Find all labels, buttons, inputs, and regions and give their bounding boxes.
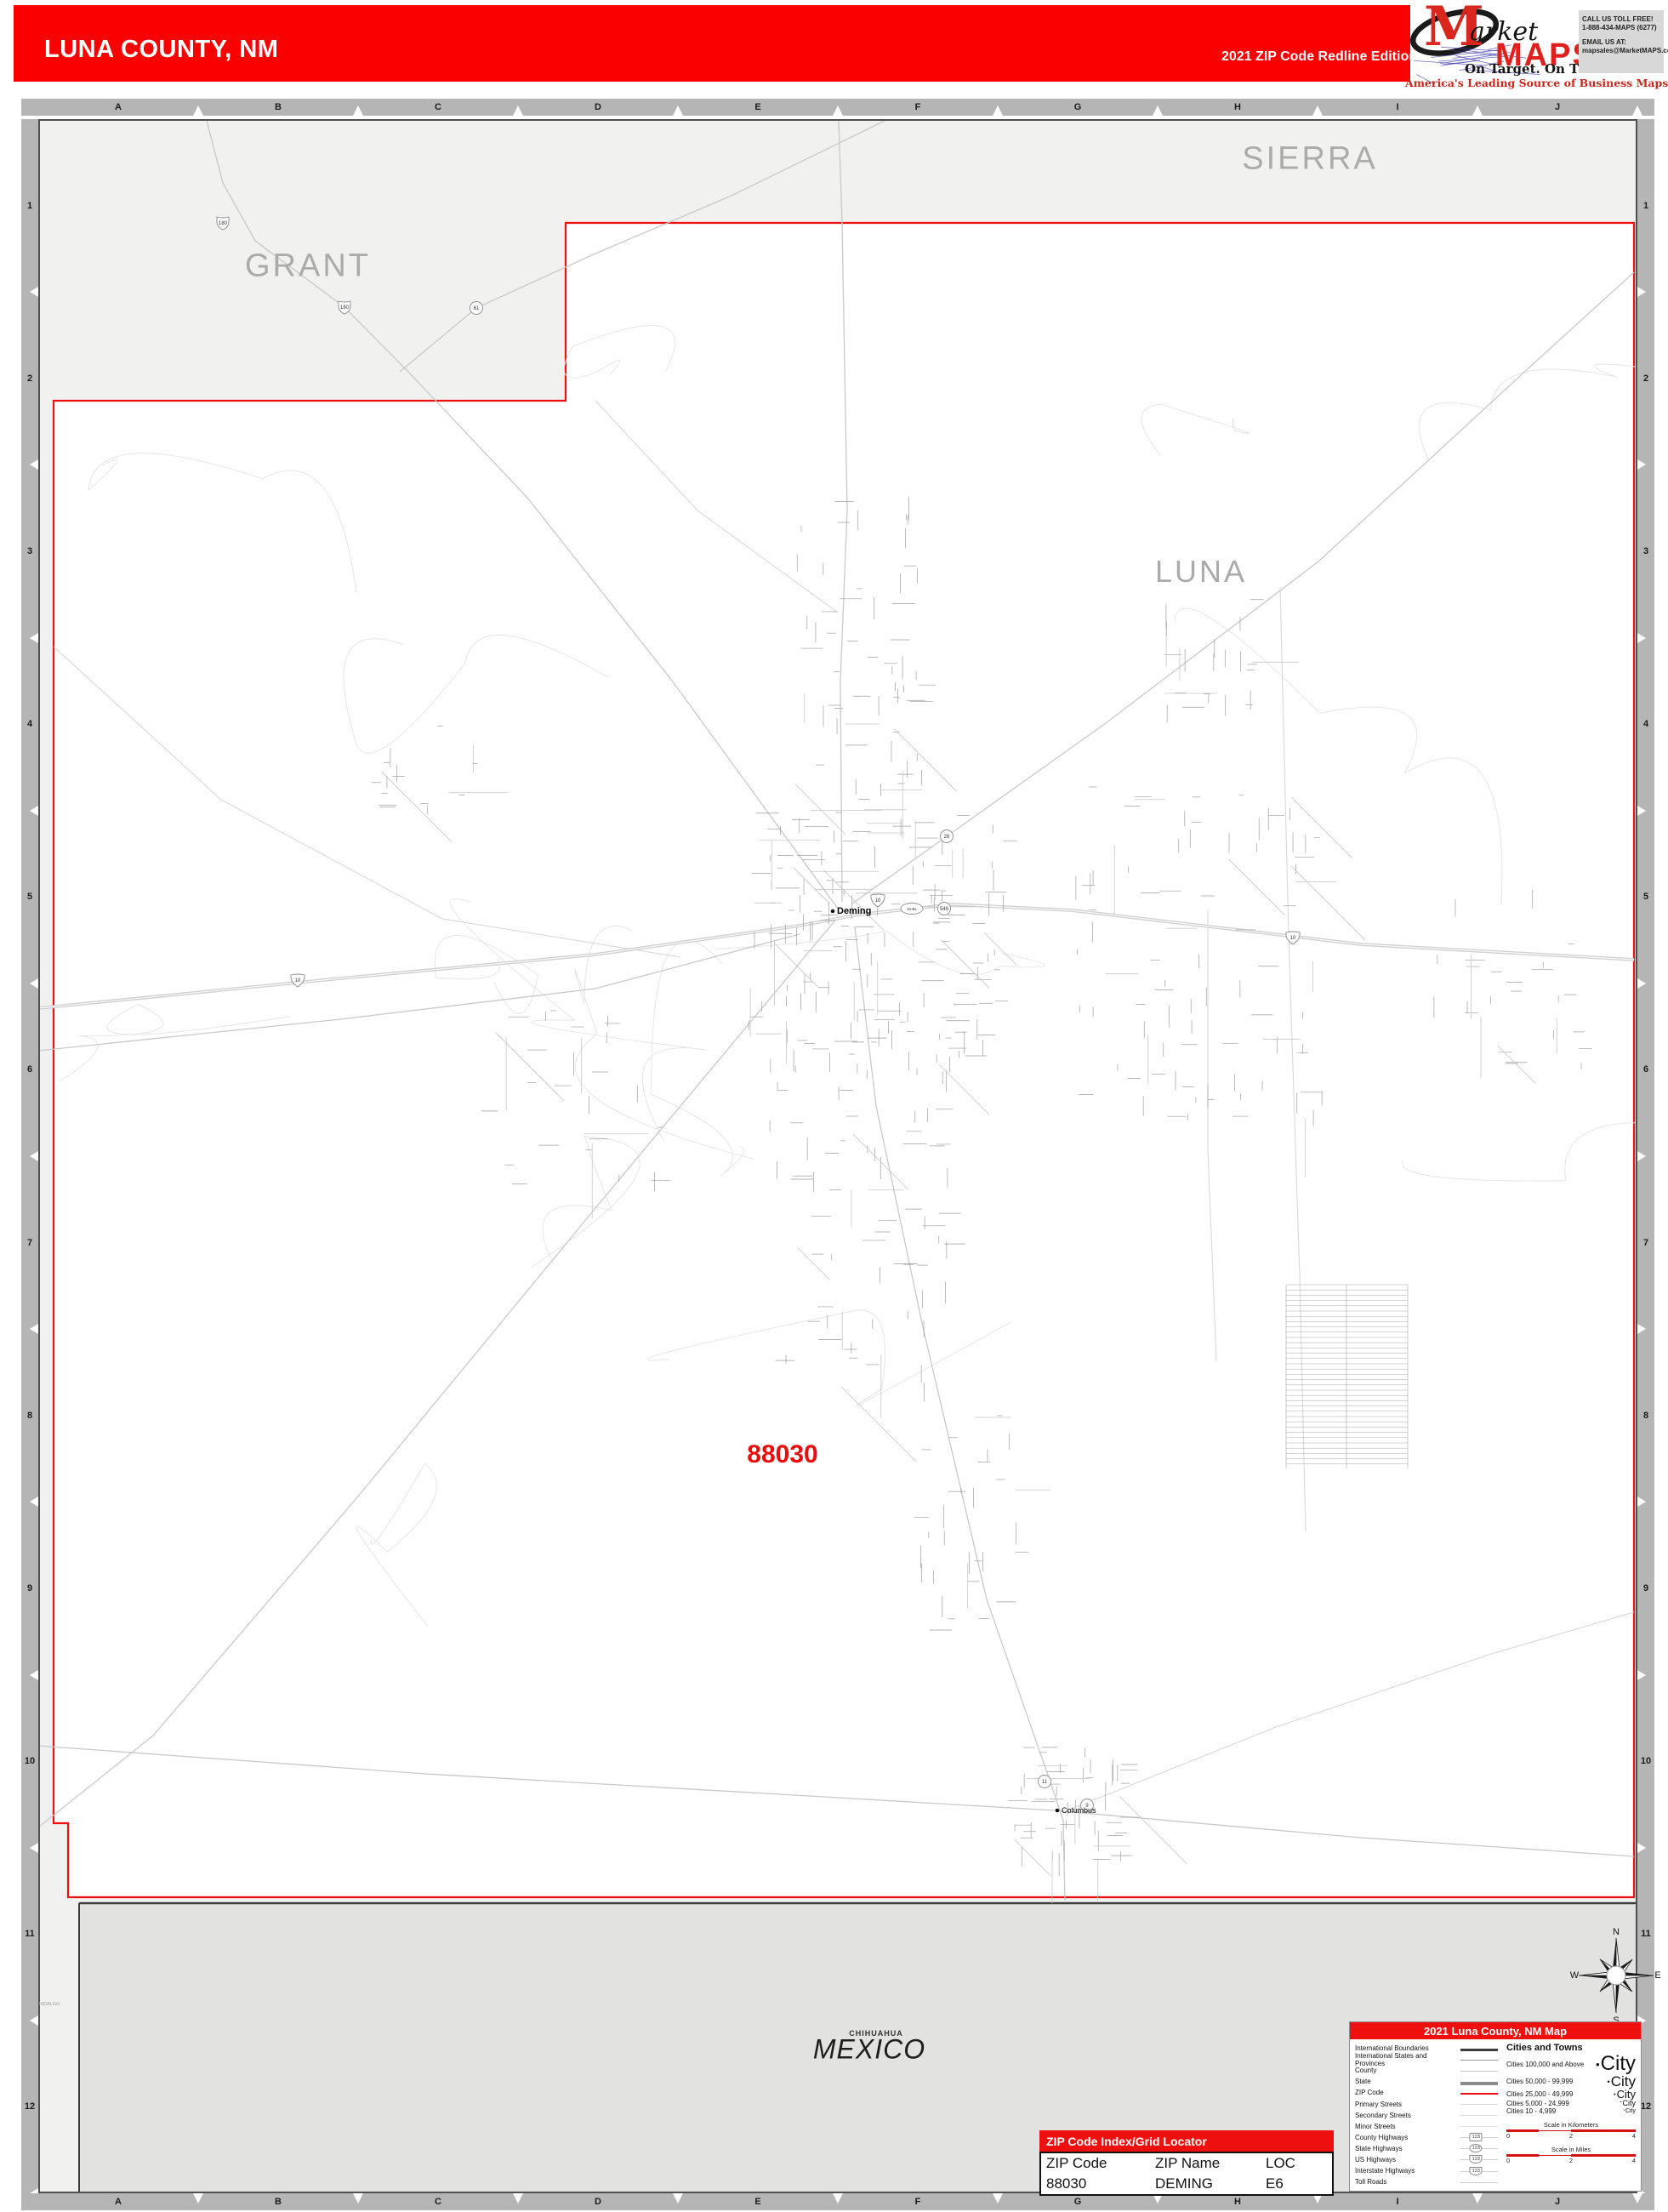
city-dot-icon: • — [1620, 2101, 1622, 2105]
grid-number: 3 — [1643, 546, 1648, 556]
legend-line-sample: 123 — [1455, 2143, 1501, 2154]
grid-row-label: 8 — [1637, 1329, 1654, 1502]
svg-text:Deming: Deming — [837, 906, 871, 916]
grid-column-label: J — [1477, 2193, 1637, 2210]
highway-shield-icon: 549 — [938, 903, 951, 915]
grid-number: 8 — [1643, 1411, 1648, 1421]
grid-row-label: 9 — [1637, 1502, 1654, 1674]
legend-line-sample — [1455, 2087, 1501, 2098]
grid-letter: J — [1555, 2197, 1560, 2207]
svg-text:180: 180 — [340, 305, 350, 311]
city-dot-icon: • — [1624, 2108, 1625, 2112]
grid-letter: I — [1396, 2197, 1398, 2207]
grid-letter: F — [915, 2197, 921, 2207]
cities-row: Cities 10 - 4,999 •City — [1506, 2107, 1636, 2115]
grid-number: 1 — [1643, 201, 1648, 211]
grid-row-label: 11 — [21, 1848, 38, 2021]
zip-index-box: ZIP Code Index/Grid Locator ZIP CodeZIP … — [1039, 2130, 1334, 2196]
legend-line-label: International States and Provinces — [1355, 2052, 1455, 2067]
legend-line-swatch — [1460, 2049, 1498, 2051]
grid-column-label: J — [1477, 99, 1637, 116]
zip-code-label: 88030 — [747, 1440, 817, 1469]
zip-loc-cell: E6 — [1266, 2175, 1332, 2192]
compass-north: N — [1613, 1927, 1620, 1937]
country-label-mexico: MEXICO — [813, 2034, 925, 2066]
svg-text:549: 549 — [940, 907, 949, 912]
scale-mi-label: Scale in Miles — [1506, 2146, 1636, 2153]
legend-line-label: Secondary Streets — [1355, 2112, 1455, 2119]
grid-letter: C — [435, 2197, 441, 2207]
grid-number: 8 — [27, 1411, 32, 1421]
grid-number: 12 — [1641, 2101, 1651, 2112]
legend-line-sample — [1455, 2065, 1501, 2076]
legend-line-item: County Highways 123 — [1355, 2132, 1501, 2143]
zip-name-cell: DEMING — [1155, 2175, 1266, 2192]
grid-number: 7 — [1643, 1238, 1648, 1248]
grid-column-label: H — [1158, 99, 1318, 116]
legend-line-sample — [1455, 2176, 1501, 2187]
legend-line-swatch — [1460, 2115, 1498, 2116]
svg-text:10-BL: 10-BL — [907, 907, 918, 911]
county-label-sierra: SIERRA — [1242, 141, 1377, 178]
zip-index-header-cell: ZIP Code — [1046, 2155, 1155, 2172]
grid-letter: G — [1074, 102, 1082, 112]
grid-number: 7 — [27, 1238, 32, 1248]
zip-index-title: ZIP Code Index/Grid Locator — [1039, 2130, 1334, 2152]
legend-line-item: Primary Streets — [1355, 2098, 1501, 2109]
scale-mi-bar — [1506, 2154, 1636, 2157]
grid-number: 9 — [27, 1583, 32, 1593]
zip-index-header-cell: ZIP Name — [1155, 2155, 1266, 2172]
cities-row: Cities 100,000 and Above •City — [1506, 2054, 1636, 2074]
grid-notch — [30, 2188, 38, 2193]
grid-letter: H — [1234, 2197, 1241, 2207]
scale-km-label: Scale in Kilometers — [1506, 2121, 1636, 2129]
grid-bar-top: A B C D E F G H I J — [21, 99, 1654, 116]
cities-row-sample: •City — [1620, 2100, 1636, 2107]
legend-highway-badge: 123 — [1470, 2155, 1483, 2164]
cities-row-label: Cities 10 - 4,999 — [1506, 2107, 1556, 2115]
grid-row-label: 5 — [1637, 811, 1654, 983]
grid-letter: F — [915, 102, 921, 112]
legend-line-label: Minor Streets — [1355, 2123, 1455, 2130]
cities-row-label: Cities 100,000 and Above — [1506, 2061, 1584, 2068]
grid-letter: J — [1555, 102, 1560, 112]
legend-highway-badge: 123 — [1470, 2144, 1483, 2152]
legend-line-label: County Highways — [1355, 2134, 1455, 2141]
grid-row-label: 9 — [21, 1502, 38, 1674]
svg-text:10: 10 — [1290, 936, 1296, 941]
grid-letter: D — [595, 102, 601, 112]
legend-line-item: Toll Roads — [1355, 2176, 1501, 2187]
grid-column-label: E — [678, 2193, 838, 2210]
grid-number: 10 — [25, 1756, 35, 1766]
legend-line-items: International Boundaries International S… — [1355, 2043, 1501, 2187]
legend-line-swatch — [1460, 2082, 1498, 2085]
legend-line-label: ZIP Code — [1355, 2089, 1455, 2096]
grid-letter: E — [754, 102, 760, 112]
grid-column-label: I — [1318, 99, 1477, 116]
legend-line-sample — [1455, 2043, 1501, 2054]
zip-index-data-row: 88030 DEMING E6 — [1041, 2174, 1332, 2194]
legend-line-item: Interstate Highways 123 — [1355, 2165, 1501, 2176]
scale-mi-ticks: 024 — [1506, 2157, 1636, 2164]
grid-number: 5 — [1643, 892, 1648, 902]
grid-row-label: 3 — [21, 465, 38, 637]
grid-column-label: C — [358, 2193, 518, 2210]
county-label-grant: GRANT — [245, 248, 371, 285]
grid-row-label: 6 — [1637, 983, 1654, 1156]
grid-number: 5 — [27, 892, 32, 902]
legend-highway-badge: 123 — [1470, 2167, 1483, 2175]
map-legend: 2021 Luna County, NM Map International B… — [1349, 2021, 1642, 2192]
highway-shield-icon: 61 — [470, 302, 483, 315]
compass-east: E — [1654, 1970, 1660, 1981]
grid-column-label: E — [678, 99, 838, 116]
legend-line-item: State — [1355, 2076, 1501, 2087]
legend-line-label: Toll Roads — [1355, 2178, 1455, 2186]
legend-highway-badge: 123 — [1470, 2133, 1483, 2141]
scale-km-ticks: 024 — [1506, 2132, 1636, 2140]
compass-rose: N E S W — [1569, 1924, 1663, 2025]
grid-letter: A — [115, 102, 122, 112]
grid-column-label: C — [358, 99, 518, 116]
grid-row-label: 2 — [21, 292, 38, 465]
grid-row-label: 5 — [21, 811, 38, 983]
legend-line-sample: 123 — [1455, 2165, 1501, 2176]
legend-line-sample — [1455, 2110, 1501, 2121]
grid-column-label: I — [1318, 2193, 1477, 2210]
grid-letter: I — [1396, 102, 1398, 112]
grid-number: 12 — [25, 2101, 35, 2112]
grid-number: 10 — [1641, 1756, 1651, 1766]
cities-row: Cities 5,000 - 24,999 •City — [1506, 2100, 1636, 2107]
grid-row-label: 1 — [1637, 119, 1654, 292]
grid-row-label: 12 — [21, 2021, 38, 2193]
legend-line-item: International States and Provinces — [1355, 2054, 1501, 2065]
map-canvas: 18061180261010-BL5491010119DemingColumbu… — [0, 0, 1668, 2212]
grid-number: 9 — [1643, 1583, 1648, 1593]
grid-letter: E — [754, 2197, 760, 2207]
legend-line-sample — [1455, 2121, 1501, 2132]
grid-column-label: H — [1158, 2193, 1318, 2210]
zip-index-header-cell: LOC — [1266, 2155, 1332, 2172]
legend-line-item: ZIP Code — [1355, 2087, 1501, 2098]
grid-column-label: G — [998, 2193, 1158, 2210]
grid-number: 6 — [1643, 1064, 1648, 1075]
svg-text:10: 10 — [875, 898, 881, 904]
legend-line-sample: 123 — [1455, 2154, 1501, 2165]
legend-line-sample — [1455, 2054, 1501, 2065]
legend-line-swatch — [1460, 2126, 1498, 2127]
grid-column-label: B — [198, 2193, 358, 2210]
grid-number: 1 — [27, 201, 32, 211]
legend-line-label: State — [1355, 2078, 1455, 2085]
grid-row-label: 7 — [21, 1156, 38, 1329]
legend-line-item: County — [1355, 2065, 1501, 2076]
legend-line-swatch — [1460, 2060, 1498, 2061]
grid-column-label: F — [838, 99, 998, 116]
grid-row-label: 4 — [1637, 638, 1654, 811]
zip-index-rows: 88030 DEMING E6 — [1041, 2174, 1332, 2194]
legend-line-sample — [1455, 2076, 1501, 2087]
legend-line-label: State Highways — [1355, 2145, 1455, 2152]
grid-number: 3 — [27, 546, 32, 556]
legend-line-swatch — [1460, 2104, 1498, 2105]
city-dot-icon: • — [1614, 2091, 1616, 2098]
grid-row-label: 6 — [21, 983, 38, 1156]
grid-letter: H — [1234, 102, 1241, 112]
grid-row-label: 10 — [21, 1675, 38, 1848]
grid-number: 4 — [27, 719, 32, 729]
grid-number: 2 — [1643, 373, 1648, 384]
city-dot-icon: • — [1607, 2078, 1609, 2086]
zip-index-header-row: ZIP CodeZIP NameLOC — [1041, 2153, 1332, 2174]
legend-line-sample: 123 — [1455, 2132, 1501, 2143]
grid-letter: G — [1074, 2197, 1082, 2207]
legend-line-label: Primary Streets — [1355, 2101, 1455, 2108]
grid-row-label: 10 — [1637, 1675, 1654, 1848]
grid-notch — [1632, 105, 1642, 116]
legend-line-swatch — [1460, 2071, 1498, 2072]
zip-index-table: ZIP CodeZIP NameLOC 88030 DEMING E6 — [1039, 2152, 1334, 2196]
grid-row-label: 7 — [1637, 1156, 1654, 1329]
grid-row-label: 8 — [21, 1329, 38, 1502]
grid-column-label: B — [198, 99, 358, 116]
grid-column-label: A — [38, 2193, 198, 2210]
grid-number: 11 — [25, 1929, 35, 1939]
compass-west: W — [1570, 1970, 1580, 1981]
svg-text:11: 11 — [1042, 1780, 1048, 1785]
svg-text:26: 26 — [944, 835, 950, 840]
cities-row-label: Cities 50,000 - 99,999 — [1506, 2078, 1573, 2085]
county-label-luna: LUNA — [1155, 554, 1247, 590]
svg-text:Columbus: Columbus — [1062, 1806, 1096, 1815]
grid-row-label: 3 — [1637, 465, 1654, 637]
city-dot-icon: • — [1596, 2058, 1600, 2071]
cities-row-sample: •City — [1596, 2054, 1636, 2074]
grid-bar-bottom: A B C D E F G H I J — [21, 2193, 1654, 2210]
cities-row-label: Cities 25,000 - 49,999 — [1506, 2090, 1573, 2098]
grid-column-label: D — [518, 99, 678, 116]
grid-letter: B — [275, 102, 282, 112]
highway-shield-icon: 11 — [1039, 1776, 1051, 1788]
grid-column-label: G — [998, 99, 1158, 116]
grid-bar-right: 1 2 3 4 5 6 7 8 9 10 11 12 — [1637, 119, 1654, 2193]
legend-line-item: State Highways 123 — [1355, 2143, 1501, 2154]
highway-shield-icon: 10-BL — [901, 904, 923, 915]
cities-rows: Cities 100,000 and Above •City Cities 50… — [1506, 2054, 1636, 2115]
cities-row: Cities 25,000 - 49,999 •City — [1506, 2089, 1636, 2100]
grid-row-label: 1 — [21, 119, 38, 292]
legend-line-item: US Highways 123 — [1355, 2154, 1501, 2165]
legend-line-item: Minor Streets — [1355, 2121, 1501, 2132]
grid-letter: B — [275, 2197, 282, 2207]
legend-line-sample — [1455, 2098, 1501, 2109]
grid-letter: C — [435, 102, 441, 112]
scale-miles: Scale in Miles 024 — [1506, 2146, 1636, 2164]
svg-text:180: 180 — [219, 221, 228, 226]
grid-row-label: 4 — [21, 638, 38, 811]
legend-title: 2021 Luna County, NM Map — [1350, 2022, 1641, 2039]
cities-row-sample: •City — [1624, 2108, 1636, 2114]
grid-column-label: A — [38, 99, 198, 116]
grid-notch — [1632, 2193, 1642, 2203]
svg-text:61: 61 — [474, 306, 480, 311]
legend-line-swatch — [1460, 2093, 1498, 2095]
legend-line-label: County — [1355, 2067, 1455, 2074]
grid-column-label: F — [838, 2193, 998, 2210]
grid-number: 2 — [27, 373, 32, 384]
zip-code-cell: 88030 — [1046, 2175, 1155, 2192]
cities-row-label: Cities 5,000 - 24,999 — [1506, 2100, 1569, 2107]
scale-kilometers: Scale in Kilometers 024 — [1506, 2121, 1636, 2140]
cities-row: Cities 50,000 - 99,999 •City — [1506, 2074, 1636, 2089]
grid-letter: D — [595, 2197, 601, 2207]
legend-line-swatch — [1460, 2182, 1498, 2183]
grid-letter: A — [115, 2197, 122, 2207]
grid-column-label: D — [518, 2193, 678, 2210]
legend-line-item: Secondary Streets — [1355, 2110, 1501, 2121]
grid-row-label: 2 — [1637, 292, 1654, 465]
legend-line-label: Interstate Highways — [1355, 2167, 1455, 2175]
grid-number: 6 — [27, 1064, 32, 1075]
grid-bar-left: 1 2 3 4 5 6 7 8 9 10 11 12 — [21, 119, 38, 2193]
grid-number: 4 — [1643, 719, 1648, 729]
cities-row-sample: •City — [1607, 2074, 1636, 2089]
county-label-hidalgo: HIDALGO — [39, 2002, 60, 2007]
scale-km-bar — [1506, 2129, 1636, 2132]
highway-shield-icon: 26 — [941, 830, 954, 843]
legend-line-label: US Highways — [1355, 2156, 1455, 2164]
page: 18061180261010-BL5491010119DemingColumbu… — [0, 0, 1668, 2212]
svg-text:10: 10 — [295, 978, 301, 983]
